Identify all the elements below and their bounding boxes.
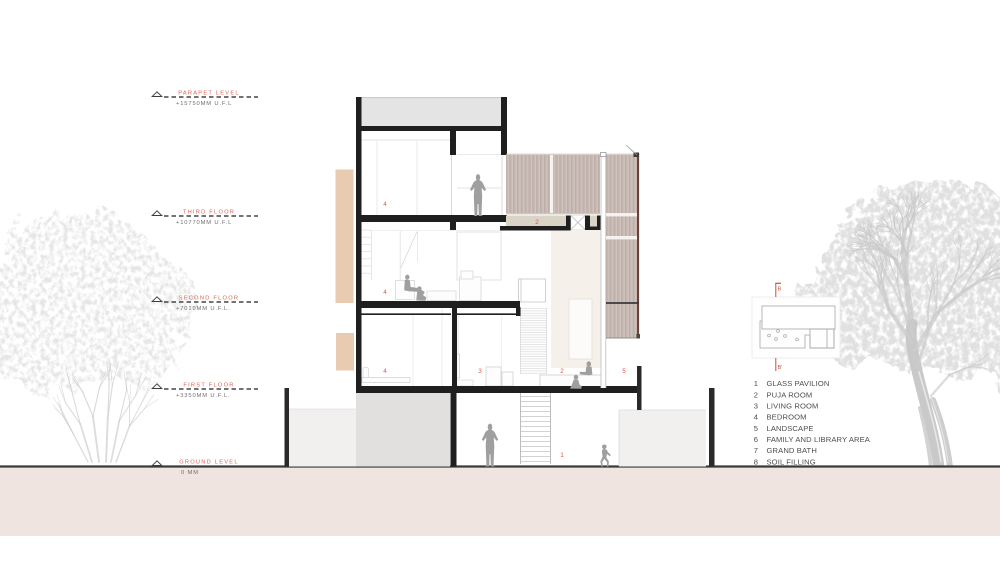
svg-text:7: 7 [754,446,758,455]
svg-text:1: 1 [560,452,564,459]
svg-text:5: 5 [754,424,758,433]
svg-text:4: 4 [754,413,758,422]
svg-text:5: 5 [622,368,626,375]
svg-text:LIVING ROOM: LIVING ROOM [767,402,819,411]
svg-text:8: 8 [754,457,758,466]
svg-text:PARAPET LEVEL: PARAPET LEVEL [178,91,240,97]
svg-text:THIRD FLOOR: THIRD FLOOR [183,210,235,216]
svg-text:GRAND BATH: GRAND BATH [767,446,817,455]
svg-text:BEDROOM: BEDROOM [767,413,807,422]
svg-text:GLASS PAVILION: GLASS PAVILION [767,379,830,388]
svg-text:4: 4 [383,289,387,296]
svg-text:4: 4 [383,368,387,375]
svg-text:4: 4 [383,201,387,208]
svg-text:3: 3 [754,402,758,411]
svg-text:6: 6 [754,435,758,444]
svg-text:+3350MM U.F.L.: +3350MM U.F.L. [176,393,231,399]
svg-text:GROUND LEVEL: GROUND LEVEL [179,460,239,466]
svg-text:3: 3 [478,368,482,375]
svg-text:B': B' [778,365,783,371]
svg-text:1: 1 [754,379,758,388]
svg-text:+10770MM U.F.L: +10770MM U.F.L [176,220,232,226]
svg-text:LANDSCAPE: LANDSCAPE [767,424,814,433]
svg-text:2: 2 [535,219,539,226]
svg-text:PUJA ROOM: PUJA ROOM [767,390,813,399]
svg-text:B: B [778,287,782,293]
svg-text:SECOND FLOOR: SECOND FLOOR [179,296,240,302]
svg-text:FIRST FLOOR: FIRST FLOOR [183,383,234,389]
svg-text:SOIL FILLING: SOIL FILLING [767,457,816,466]
svg-text:2: 2 [754,390,758,399]
svg-text:+7010MM U.F.L.: +7010MM U.F.L. [176,306,231,312]
svg-text:+15750MM U.F.L: +15750MM U.F.L [176,101,232,107]
svg-text:0 MM: 0 MM [181,470,199,476]
svg-text:FAMILY AND LIBRARY AREA: FAMILY AND LIBRARY AREA [767,435,871,444]
svg-text:2: 2 [560,368,564,375]
